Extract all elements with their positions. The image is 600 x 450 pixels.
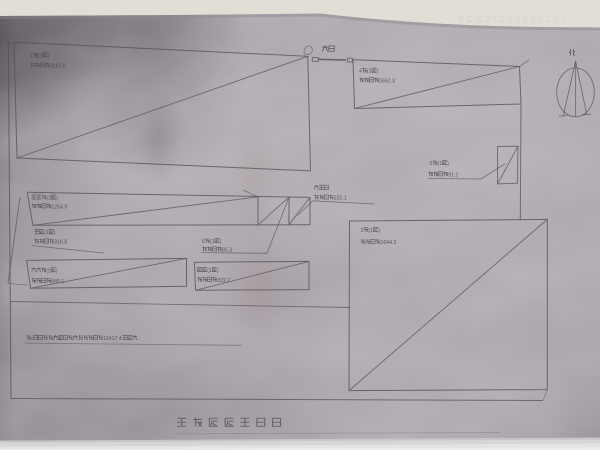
svg-text:1644.3: 1644.3 — [381, 240, 397, 246]
svg-text:(1: (1 — [367, 69, 372, 75]
svg-text:845.1: 845.1 — [51, 279, 64, 285]
svg-text:(1: (1 — [437, 161, 442, 167]
svg-text:(2: (2 — [46, 196, 51, 202]
svg-text:6: 6 — [202, 239, 205, 245]
svg-text:1254.9: 1254.9 — [51, 204, 67, 210]
svg-text:(1: (1 — [44, 230, 49, 236]
svg-text:5: 5 — [430, 161, 433, 167]
svg-text:232.1: 232.1 — [334, 196, 347, 202]
svg-text:12417.4: 12417.4 — [103, 336, 122, 342]
svg-text:1: 1 — [30, 53, 33, 59]
svg-text:3: 3 — [361, 228, 364, 234]
svg-text:3163.6: 3163.6 — [50, 64, 66, 70]
svg-text:(1: (1 — [207, 268, 212, 274]
svg-text:): ) — [54, 230, 56, 236]
svg-text:): ) — [378, 228, 380, 234]
svg-text:4: 4 — [359, 69, 362, 75]
svg-text:): ) — [447, 161, 449, 167]
svg-text:): ) — [56, 268, 58, 274]
svg-text:(1: (1 — [368, 228, 373, 234]
svg-text:.: . — [137, 336, 138, 342]
svg-text:322.2: 322.2 — [217, 278, 230, 284]
svg-text:316.8: 316.8 — [54, 240, 67, 246]
svg-text:2662.3: 2662.3 — [379, 78, 395, 84]
svg-text:): ) — [217, 268, 219, 274]
svg-text:): ) — [48, 53, 50, 59]
svg-text:(1: (1 — [210, 239, 215, 245]
svg-text:): ) — [56, 196, 58, 202]
svg-text:): ) — [377, 69, 379, 75]
svg-text:91.2: 91.2 — [448, 172, 458, 178]
svg-text::: : — [31, 336, 32, 342]
svg-text:(2: (2 — [46, 268, 51, 274]
svg-text:): ) — [220, 239, 222, 245]
svg-text:(1: (1 — [38, 53, 43, 59]
